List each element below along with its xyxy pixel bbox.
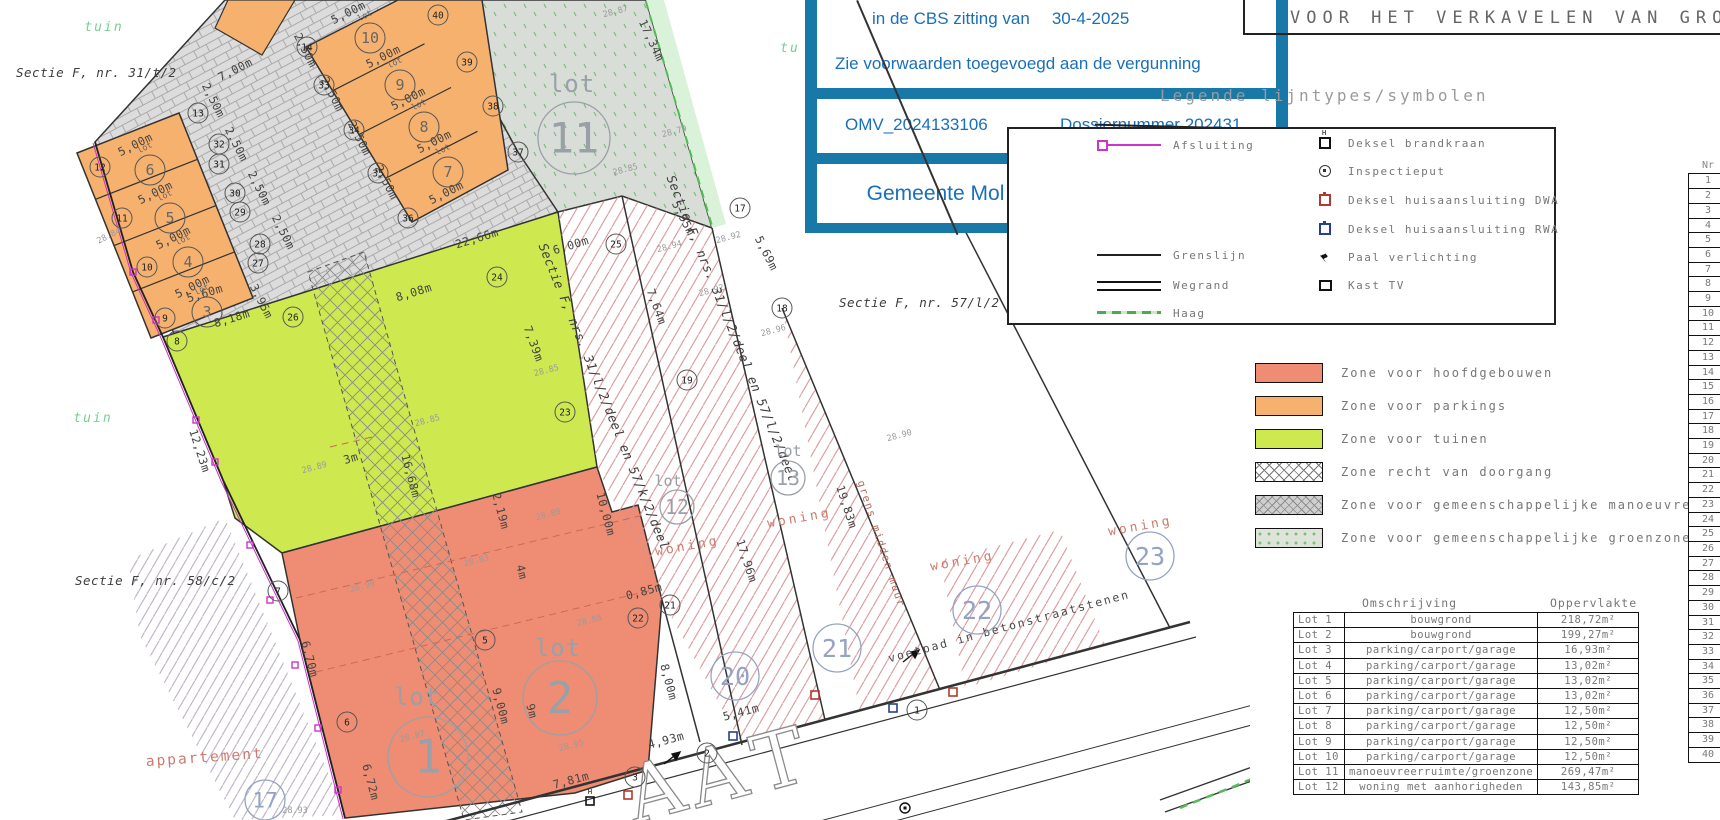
afsluiting-sample — [1097, 139, 1161, 151]
map-label: lot — [654, 472, 681, 490]
legend-row-afsluiting: Afsluiting — [1097, 137, 1254, 153]
table-row: Lot 3parking/carport/garage16,93m² — [1294, 643, 1639, 658]
voorwaarden-line: Zie voorwaarden toegevoegd aan de vergun… — [835, 54, 1201, 74]
boundary-point-number: 39 — [461, 58, 473, 69]
table-cell: Lot 8 — [1294, 719, 1345, 734]
table-cell: Lot 4 — [1294, 658, 1345, 673]
map-label: lot — [549, 70, 595, 98]
table-cell: bouwgrond — [1345, 628, 1538, 643]
boundary-point-number: 24 — [491, 273, 503, 284]
boundary-point-number: 13 — [192, 109, 203, 120]
haag-sample — [1097, 307, 1161, 319]
boundary-point-number: 12 — [94, 163, 105, 174]
map-label: tuin — [84, 20, 123, 35]
inspectieput-icon — [1314, 165, 1336, 177]
map-label: 8,00m — [657, 662, 680, 701]
title-block: VOOR HET VERKAVELEN VAN GRONDEN — [1243, 0, 1720, 35]
legend-row-inspectieput: Inspectieput — [1314, 163, 1445, 179]
map-label: Sectie F, nr. 57/l/2 — [839, 295, 1000, 310]
table-cell: 218,72m² — [1538, 613, 1639, 628]
boundary-point-number: 2 — [704, 749, 710, 760]
table-cell: Lot 5 — [1294, 673, 1345, 688]
table-cell: parking/carport/garage — [1345, 688, 1538, 703]
boundary-point-number: 11 — [116, 214, 128, 225]
boundary-point-number: 23 — [559, 408, 570, 419]
zone-swatch-hoofdgebouwen — [1255, 363, 1323, 383]
table-row: Lot 11manoeuvreerruimte/groenzone269,47m… — [1294, 764, 1639, 779]
map-label: Sectie F, nr. 31/t/2 — [16, 65, 177, 80]
cbs-zitting-line: in de CBS zitting van30-4-2025 — [872, 9, 1129, 29]
table-header-oppervlakte: Oppervlakte — [1550, 596, 1637, 610]
brandkraan-icon: H — [586, 788, 594, 805]
zone-row-doorgang: Zone recht van doorgang — [1255, 461, 1553, 483]
table-row: Lot 2bouwgrond199,27m² — [1294, 628, 1639, 643]
map-label: 28.92 — [715, 230, 742, 246]
legend-row-rwa: Deksel huisaansluiting RWA — [1314, 221, 1559, 237]
boundary-point-number: 40 — [432, 11, 444, 22]
lot-number: 1 — [414, 730, 442, 784]
boundary-point-number: 36 — [402, 214, 414, 225]
legend-row-brandkraan: Deksel brandkraan — [1314, 135, 1486, 151]
table-header-omschrijving: Omschrijving — [1362, 596, 1457, 610]
table-cell: 16,93m² — [1538, 643, 1639, 658]
lot-number: 12 — [665, 495, 689, 519]
deksel-dwa-icon — [949, 688, 957, 696]
boundary-point-number: 32 — [213, 140, 224, 151]
table-row: Lot 4parking/carport/garage13,02m² — [1294, 658, 1639, 673]
zone-row-parkings: Zone voor parkings — [1255, 395, 1507, 417]
table-cell: 269,47m² — [1538, 764, 1639, 779]
boundary-point-number: 6 — [344, 718, 350, 729]
map-label: lot — [535, 634, 581, 662]
table-cell: 143,85m² — [1538, 780, 1639, 795]
parking-lot-number: 4 — [183, 253, 192, 271]
lot-number: 2 — [547, 673, 574, 724]
zone-legend: Zone voor hoofdgebouwen Zone voor parkin… — [1255, 335, 1665, 555]
boundary-point-number: 8 — [174, 337, 180, 348]
boundary-point-number: 10 — [141, 263, 153, 274]
parking-lot-number: 3 — [202, 303, 211, 321]
table-cell: parking/carport/garage — [1345, 734, 1538, 749]
nr-row: 40 — [1688, 747, 1720, 763]
table-cell: 199,27m² — [1538, 628, 1639, 643]
boundary-point-number: 31 — [213, 160, 225, 171]
wegrand-sample — [1097, 279, 1161, 291]
table-row: Lot 1bouwgrond218,72m² — [1294, 613, 1639, 628]
table-cell: Lot 12 — [1294, 780, 1345, 795]
nr-column: Nr 1234567891011121314151617181920212223… — [1688, 160, 1720, 763]
zone-swatch-groenzone — [1255, 528, 1323, 548]
map-label: 28.93 — [282, 806, 308, 816]
map-label: 28.96 — [760, 323, 787, 339]
house-number: 20 — [720, 662, 750, 691]
table-cell: Lot 11 — [1294, 764, 1345, 779]
table-row: Lot 6parking/carport/garage13,02m² — [1294, 688, 1639, 703]
zone-row-tuinen: Zone voor tuinen — [1255, 428, 1489, 450]
drawing-title: VOOR HET VERKAVELEN VAN GRONDEN — [1290, 8, 1720, 28]
legend-title: Legende lijntypes/symbolen — [1160, 86, 1488, 105]
table-cell: manoeuvreerruimte/groenzone — [1345, 764, 1538, 779]
table-cell: Lot 3 — [1294, 643, 1345, 658]
table-cell: Lot 7 — [1294, 704, 1345, 719]
stamp-decision-cell: in de CBS zitting van30-4-2025 Zie voorw… — [817, 0, 1276, 88]
table-cell: parking/carport/garage — [1345, 658, 1538, 673]
legend-box: Afsluiting Grenslijn Wegrand Haag Deksel… — [1007, 127, 1556, 325]
cbs-zitting-date: 30-4-2025 — [1052, 9, 1130, 28]
boundary-point-number: 29 — [234, 208, 246, 219]
lot-table: Lot 1bouwgrond218,72m²Lot 2bouwgrond199,… — [1293, 612, 1639, 795]
zone-swatch-manoeuvreerruimte — [1255, 495, 1323, 515]
boundary-point-number: 33 — [318, 81, 329, 92]
legend-row-grenslijn: Grenslijn — [1097, 247, 1246, 263]
deksel-dwa-icon — [1314, 194, 1336, 206]
cbs-zitting-label: in de CBS zitting van — [872, 9, 1030, 28]
boundary-point-number: 22 — [632, 614, 643, 625]
parking-lot-number: 7 — [443, 163, 452, 181]
table-cell: parking/carport/garage — [1345, 719, 1538, 734]
svg-text:H: H — [588, 788, 592, 796]
inspectieput-icon — [900, 803, 910, 813]
boundary-point-number: 19 — [681, 376, 693, 387]
legend-row-paal: ⚑ Paal verlichting — [1314, 249, 1478, 265]
zone-row-groenzone: Zone voor gemeenschappelijke groenzone — [1255, 527, 1692, 549]
table-cell: Lot 10 — [1294, 749, 1345, 764]
map-label: tuin — [73, 411, 112, 426]
table-cell: parking/carport/garage — [1345, 643, 1538, 658]
map-label: 28.90 — [886, 428, 913, 444]
grenslijn-sample — [1097, 249, 1161, 261]
boundary-point-number: 30 — [229, 189, 241, 200]
table-cell: 12,50m² — [1538, 704, 1639, 719]
table-cell: parking/carport/garage — [1345, 749, 1538, 764]
map-label: lot — [394, 683, 440, 711]
house-number: 23 — [1135, 542, 1165, 571]
parking-lot-number: 5 — [165, 209, 174, 227]
boundary-point-number: 14 — [301, 43, 313, 54]
boundary-point-number: 26 — [287, 313, 299, 324]
boundary-point-number: 17 — [734, 204, 745, 215]
deksel-rwa-icon — [1314, 223, 1336, 235]
legend-row-kast-tv: Kast TV — [1314, 277, 1405, 293]
boundary-point-number: 5 — [482, 636, 488, 647]
parking-lot-number: 8 — [419, 118, 428, 136]
table-row: Lot 9parking/carport/garage12,50m² — [1294, 734, 1639, 749]
boundary-point-number: 18 — [776, 304, 788, 315]
boundary-point-number: 25 — [610, 240, 621, 251]
table-cell: 12,50m² — [1538, 719, 1639, 734]
verkavelingsplan-page: H 5,00m5,00m5,00m5,00m5,00m5,00m5,00m5,0… — [0, 0, 1720, 820]
map-label: tu — [780, 41, 800, 56]
table-row: Lot 7parking/carport/garage12,50m² — [1294, 704, 1639, 719]
table-cell: parking/carport/garage — [1345, 673, 1538, 688]
parking-lot-number: 9 — [395, 76, 404, 94]
table-cell: 12,50m² — [1538, 734, 1639, 749]
table-cell: Lot 6 — [1294, 688, 1345, 703]
legend-row-dwa: Deksel huisaansluiting DWA — [1314, 192, 1559, 208]
map-label: Sectie F, nr. 58/c/2 — [75, 573, 236, 588]
lot-number: 11 — [549, 113, 600, 162]
deksel-rwa-icon — [889, 704, 897, 712]
deksel-brandkraan-icon — [1314, 137, 1336, 149]
table-cell: bouwgrond — [1345, 613, 1538, 628]
table-cell: 12,50m² — [1538, 749, 1639, 764]
boundary-point-number: 37 — [512, 148, 523, 159]
boundary-point-number: 34 — [348, 126, 360, 137]
zone-swatch-parkings — [1255, 396, 1323, 416]
boundary-point-number: 1 — [914, 706, 920, 717]
zone-swatch-tuinen — [1255, 429, 1323, 449]
boundary-point-number: 38 — [487, 102, 499, 113]
table-cell: Lot 9 — [1294, 734, 1345, 749]
boundary-point-number: 28 — [254, 240, 266, 251]
legend-row-wegrand: Wegrand — [1097, 277, 1230, 293]
table-row: Lot 12woning met aanhorigheden143,85m² — [1294, 780, 1639, 795]
house-number: 22 — [962, 596, 992, 625]
boundary-point-number: 21 — [664, 601, 676, 612]
kast-tv-icon — [1314, 280, 1336, 291]
map-label: lot — [774, 442, 801, 460]
table-cell: Lot 1 — [1294, 613, 1345, 628]
table-row: Lot 10parking/carport/garage12,50m² — [1294, 749, 1639, 764]
parking-lot-number: 6 — [145, 161, 154, 179]
table-cell: 13,02m² — [1538, 673, 1639, 688]
zone-swatch-doorgang — [1255, 462, 1323, 482]
omv-number: OMV_2024133106 — [845, 115, 988, 135]
table-cell: woning met aanhorigheden — [1345, 780, 1538, 795]
paal-verlichting-icon: ⚑ — [1314, 252, 1336, 262]
legend-row-haag: Haag — [1097, 305, 1206, 321]
boundary-point-number: 3 — [632, 773, 638, 784]
zone-row-hoofdgebouwen: Zone voor hoofdgebouwen — [1255, 362, 1553, 384]
lot-number: 13 — [776, 466, 800, 490]
boundary-point-number: 35 — [372, 169, 383, 180]
lot-area-table: Omschrijving Oppervlakte Lot 1bouwgrond2… — [1250, 588, 1690, 820]
table-cell: parking/carport/garage — [1345, 704, 1538, 719]
boundary-point-number: 7 — [275, 587, 281, 598]
table-cell: Lot 2 — [1294, 628, 1345, 643]
table-row: Lot 5parking/carport/garage13,02m² — [1294, 673, 1639, 688]
table-cell: 13,02m² — [1538, 688, 1639, 703]
table-row: Lot 8parking/carport/garage12,50m² — [1294, 719, 1639, 734]
house-number: 17 — [252, 789, 277, 813]
boundary-point-number: 9 — [162, 314, 168, 325]
zone-row-manoeuvreerruimte: Zone voor gemeenschappelijke manoeuvreer… — [1255, 494, 1720, 516]
house-number: 21 — [822, 634, 852, 663]
boundary-point-number: 27 — [252, 259, 263, 270]
table-cell: 13,02m² — [1538, 658, 1639, 673]
map-label: 5,69m — [752, 233, 781, 272]
parking-lot-number: 10 — [361, 29, 379, 47]
